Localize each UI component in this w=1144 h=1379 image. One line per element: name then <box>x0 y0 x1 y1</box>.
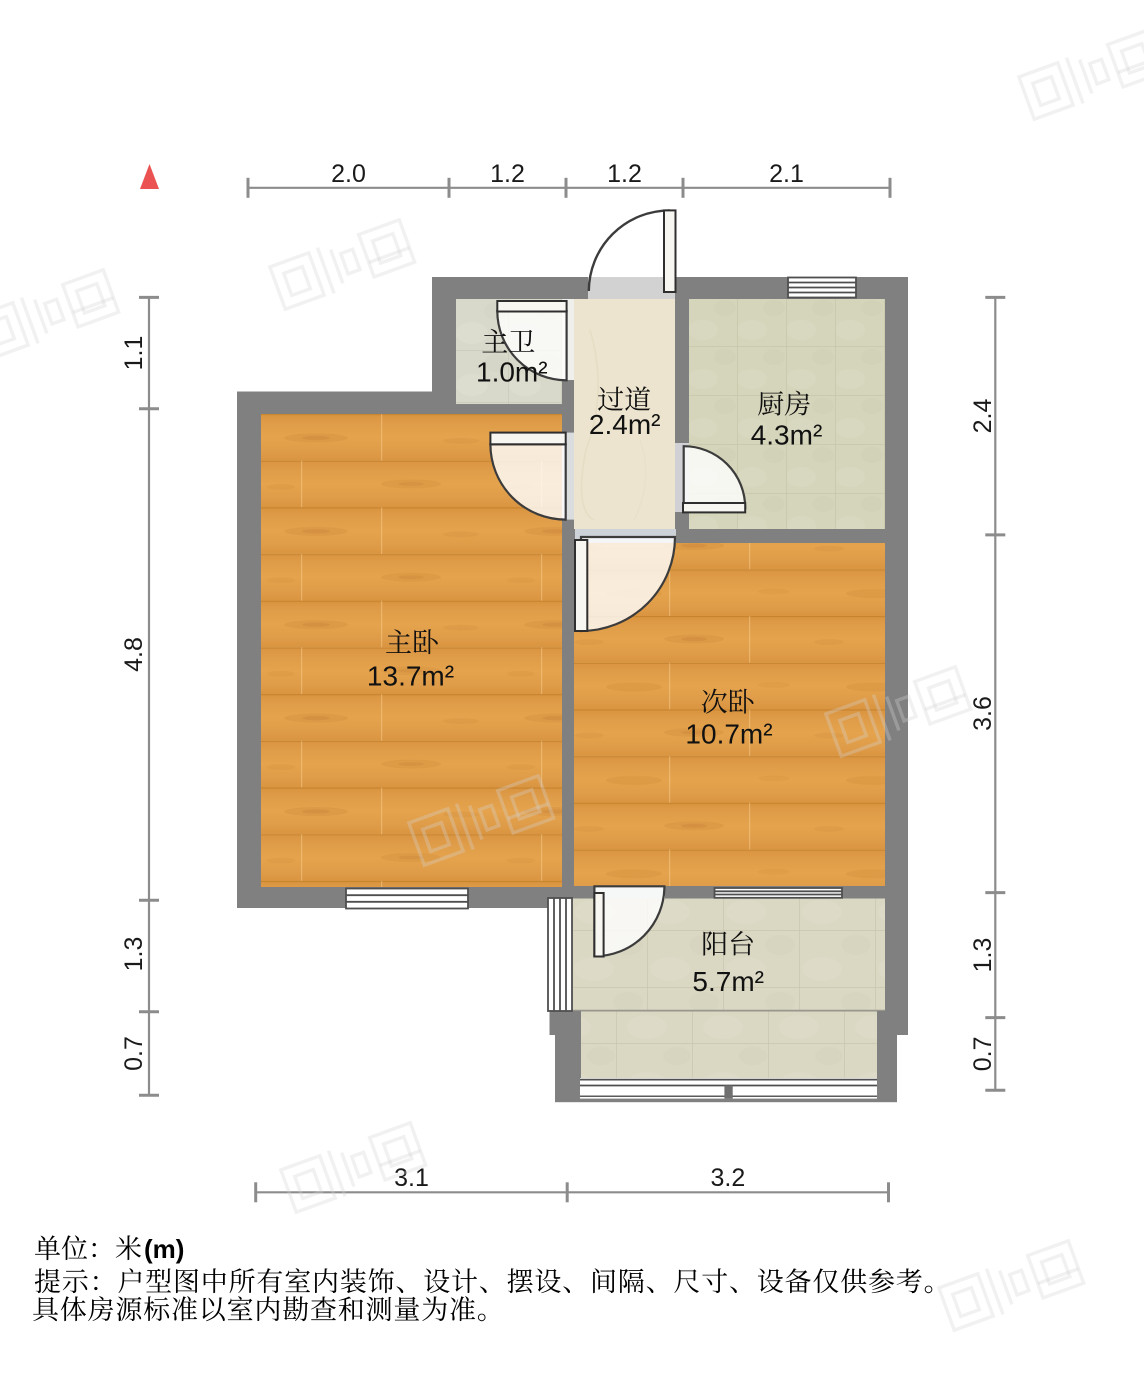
svg-text:4.8: 4.8 <box>120 637 148 672</box>
svg-text:1.2: 1.2 <box>490 160 525 188</box>
svg-text:1.2: 1.2 <box>607 160 642 188</box>
svg-text:0.7: 0.7 <box>120 1036 148 1071</box>
svg-text:3.2: 3.2 <box>711 1164 746 1192</box>
svg-text:2.0: 2.0 <box>331 160 366 188</box>
svg-text:(m): (m) <box>144 1234 184 1264</box>
svg-text:2.1: 2.1 <box>769 160 804 188</box>
svg-text:1.1: 1.1 <box>120 336 148 371</box>
svg-text:2.4m²: 2.4m² <box>589 409 661 440</box>
svg-text:5.7m²: 5.7m² <box>692 966 764 997</box>
svg-text:3.6: 3.6 <box>969 696 997 731</box>
svg-text:1.3: 1.3 <box>120 937 148 972</box>
svg-text:1.3: 1.3 <box>969 938 997 973</box>
svg-text:10.7m²: 10.7m² <box>685 719 772 750</box>
svg-text:2.4: 2.4 <box>969 399 997 434</box>
svg-text:0.7: 0.7 <box>969 1037 997 1072</box>
svg-text:4.3m²: 4.3m² <box>751 420 823 451</box>
svg-text:13.7m²: 13.7m² <box>367 661 454 692</box>
svg-text:3.1: 3.1 <box>394 1164 429 1192</box>
svg-text:1.0m²: 1.0m² <box>476 357 548 388</box>
